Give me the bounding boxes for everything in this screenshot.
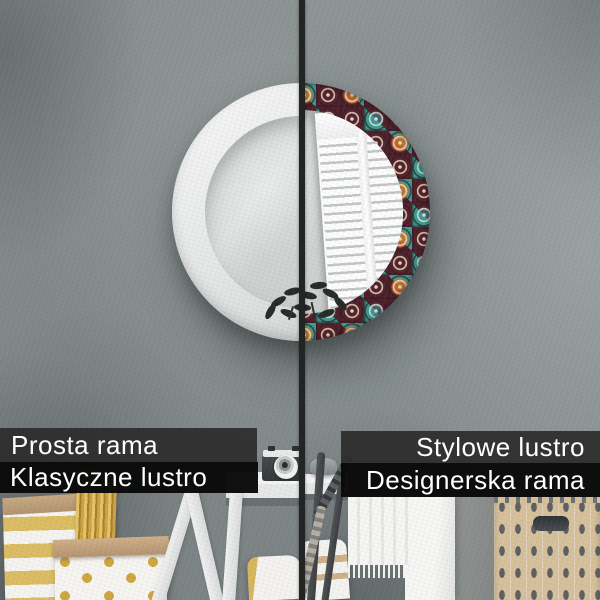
camera-lens [274, 455, 298, 479]
bag-kraft-fold [53, 536, 170, 558]
caption-bar-right-1: Stylowe lustro [341, 431, 600, 463]
white-towel-long [405, 497, 455, 600]
plant-sprig-silhouette [256, 278, 356, 332]
leaf [317, 307, 335, 319]
white-towel-fringed [348, 497, 410, 565]
caption-right-line2: Designerska rama [366, 465, 585, 496]
caption-bar-right-2: Designerska rama [341, 463, 600, 497]
basket-zigzag-rim [494, 496, 600, 503]
camera-knob [268, 446, 275, 451]
basket-handle-slot [533, 516, 569, 531]
camera-knob [292, 446, 299, 451]
caption-left-line2: Klasyczne lustro [10, 462, 207, 493]
split-divider-line [299, 0, 305, 600]
gift-bag-gold-dotted [55, 552, 167, 600]
leaf [332, 295, 349, 312]
leaf [263, 302, 278, 320]
storage-basket-patterned [494, 496, 600, 600]
caption-bar-left-2: Klasyczne lustro [0, 462, 258, 493]
caption-left-line1: Prosta rama [11, 430, 158, 461]
caption-bar-left-1: Prosta rama [0, 428, 257, 462]
caption-right-line1: Stylowe lustro [416, 432, 585, 463]
product-comparison-image: Prosta rama Klasyczne lustro Stylowe lus… [0, 0, 600, 600]
plant-stem [311, 302, 316, 316]
towel-fringe [348, 565, 410, 578]
pillow-gold-band [247, 555, 302, 600]
